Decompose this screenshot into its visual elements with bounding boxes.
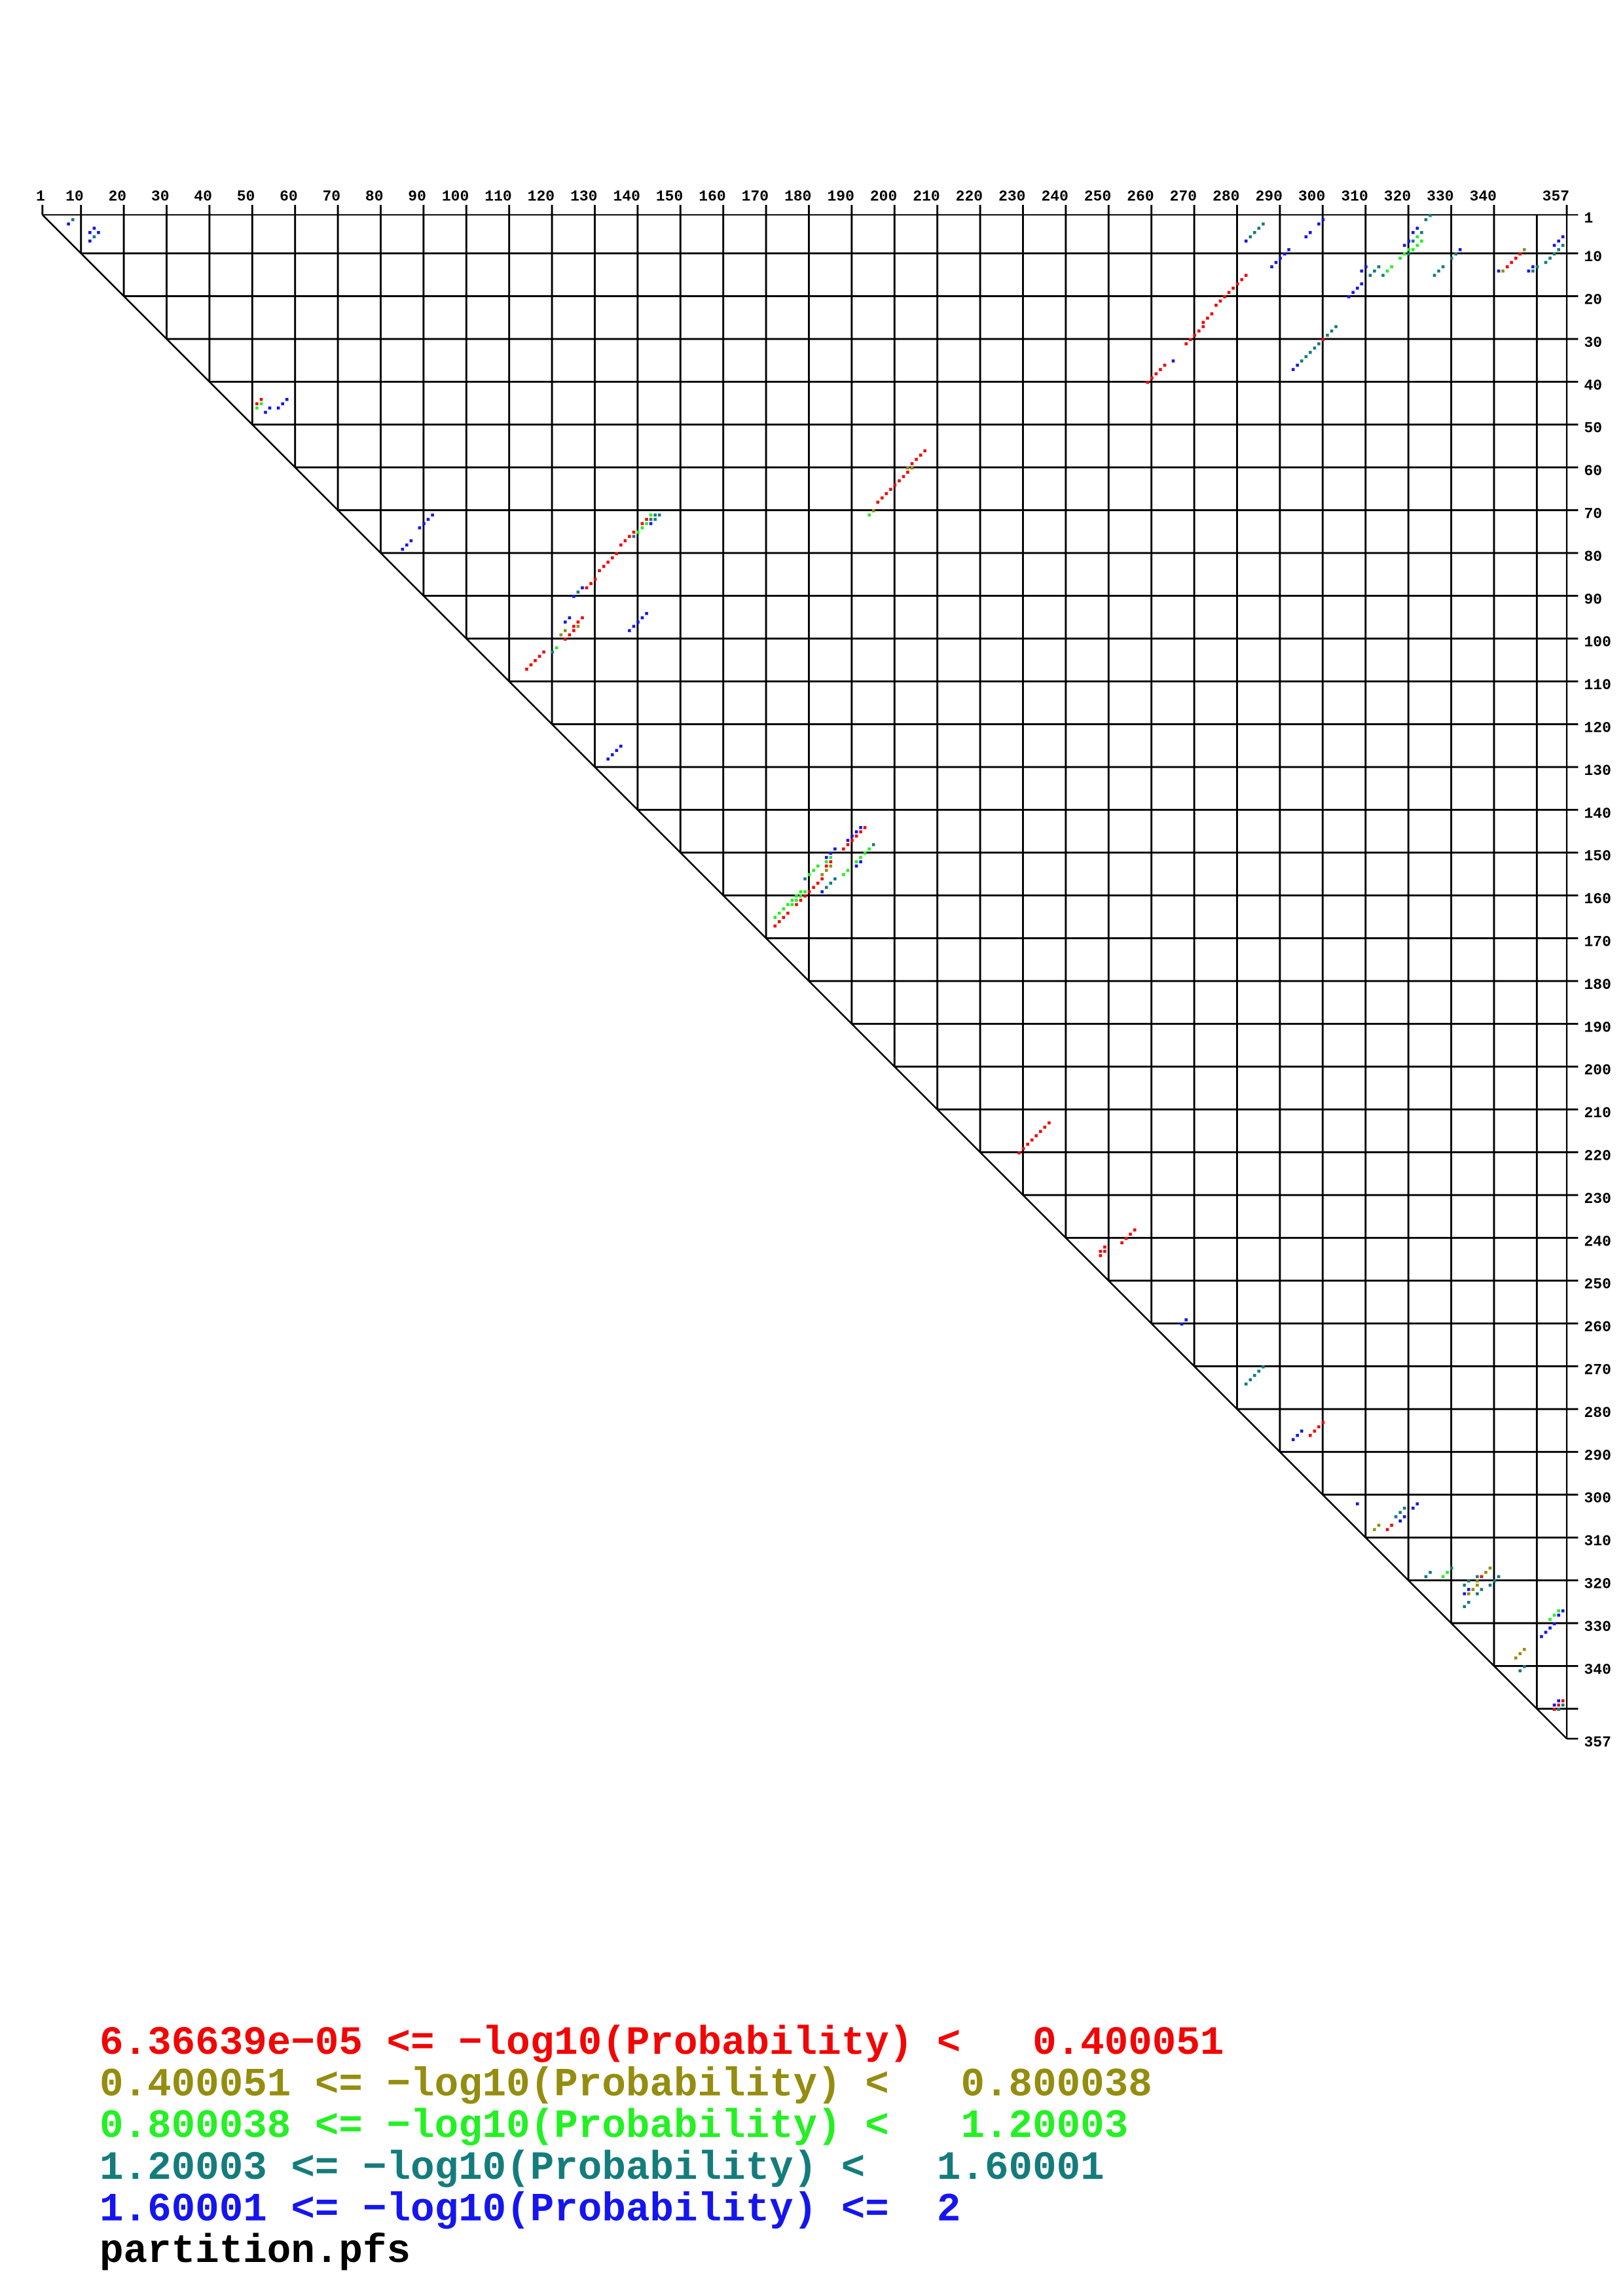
svg-text:1: 1 xyxy=(36,188,45,206)
svg-text:190: 190 xyxy=(1584,1019,1611,1036)
svg-text:90: 90 xyxy=(408,188,426,206)
svg-text:190: 190 xyxy=(827,188,854,206)
svg-text:90: 90 xyxy=(1584,591,1603,608)
svg-text:230: 230 xyxy=(1584,1191,1611,1208)
svg-text:300: 300 xyxy=(1298,188,1325,206)
svg-text:130: 130 xyxy=(1584,762,1611,780)
svg-text:200: 200 xyxy=(1584,1062,1611,1079)
svg-text:180: 180 xyxy=(784,188,811,206)
svg-text:1.20003 <= −log10(Probability): 1.20003 <= −log10(Probability) < 1.60001 xyxy=(100,2146,1104,2191)
svg-text:240: 240 xyxy=(1584,1233,1611,1250)
svg-text:110: 110 xyxy=(1584,677,1611,694)
svg-text:6.36639e−05 <= −log10(Probabil: 6.36639e−05 <= −log10(Probability) < 0.4… xyxy=(100,2021,1224,2066)
svg-text:140: 140 xyxy=(1584,805,1611,822)
svg-text:150: 150 xyxy=(656,188,683,206)
svg-text:160: 160 xyxy=(699,188,725,206)
svg-text:80: 80 xyxy=(365,188,384,206)
svg-text:10: 10 xyxy=(1584,249,1603,266)
svg-text:partition.pfs: partition.pfs xyxy=(100,2229,410,2274)
svg-text:10: 10 xyxy=(65,188,84,206)
svg-text:80: 80 xyxy=(1584,548,1603,565)
svg-text:20: 20 xyxy=(108,188,126,206)
svg-text:0.800038 <= −log10(Probability: 0.800038 <= −log10(Probability) < 1.2000… xyxy=(100,2104,1128,2149)
svg-text:100: 100 xyxy=(1584,634,1611,651)
svg-text:270: 270 xyxy=(1170,188,1197,206)
svg-text:250: 250 xyxy=(1584,1276,1611,1293)
svg-text:310: 310 xyxy=(1584,1533,1611,1550)
svg-text:120: 120 xyxy=(1584,720,1611,737)
svg-text:130: 130 xyxy=(570,188,597,206)
svg-text:340: 340 xyxy=(1584,1661,1611,1678)
svg-text:270: 270 xyxy=(1584,1362,1611,1379)
svg-text:120: 120 xyxy=(528,188,555,206)
svg-text:70: 70 xyxy=(1584,506,1603,523)
svg-text:330: 330 xyxy=(1584,1619,1611,1636)
svg-text:357: 357 xyxy=(1542,188,1569,206)
svg-text:240: 240 xyxy=(1041,188,1068,206)
svg-text:330: 330 xyxy=(1427,188,1453,206)
svg-text:260: 260 xyxy=(1127,188,1154,206)
svg-text:210: 210 xyxy=(1584,1105,1611,1122)
svg-text:0.400051 <= −log10(Probability: 0.400051 <= −log10(Probability) < 0.8000… xyxy=(100,2063,1152,2108)
svg-text:290: 290 xyxy=(1255,188,1282,206)
svg-text:70: 70 xyxy=(322,188,340,206)
svg-text:290: 290 xyxy=(1584,1447,1611,1464)
svg-text:140: 140 xyxy=(613,188,640,206)
svg-text:40: 40 xyxy=(194,188,212,206)
svg-text:100: 100 xyxy=(442,188,469,206)
svg-text:30: 30 xyxy=(151,188,170,206)
svg-text:250: 250 xyxy=(1084,188,1111,206)
svg-text:110: 110 xyxy=(484,188,511,206)
svg-text:300: 300 xyxy=(1584,1490,1611,1507)
svg-text:50: 50 xyxy=(237,188,255,206)
svg-text:60: 60 xyxy=(280,188,298,206)
svg-text:280: 280 xyxy=(1584,1405,1611,1422)
svg-text:170: 170 xyxy=(742,188,769,206)
svg-text:260: 260 xyxy=(1584,1319,1611,1336)
svg-text:20: 20 xyxy=(1584,292,1603,309)
svg-text:320: 320 xyxy=(1384,188,1411,206)
svg-text:180: 180 xyxy=(1584,977,1611,994)
svg-text:1: 1 xyxy=(1584,210,1594,227)
svg-text:320: 320 xyxy=(1584,1576,1611,1593)
svg-text:150: 150 xyxy=(1584,848,1611,865)
svg-text:40: 40 xyxy=(1584,377,1603,394)
svg-text:310: 310 xyxy=(1341,188,1368,206)
svg-text:210: 210 xyxy=(913,188,939,206)
svg-text:30: 30 xyxy=(1584,334,1603,351)
svg-text:50: 50 xyxy=(1584,420,1603,437)
svg-text:200: 200 xyxy=(870,188,897,206)
svg-text:280: 280 xyxy=(1213,188,1239,206)
svg-text:357: 357 xyxy=(1584,1734,1611,1751)
svg-text:230: 230 xyxy=(998,188,1025,206)
svg-text:340: 340 xyxy=(1470,188,1497,206)
svg-text:160: 160 xyxy=(1584,891,1611,908)
svg-text:220: 220 xyxy=(1584,1148,1611,1165)
svg-text:170: 170 xyxy=(1584,934,1611,951)
svg-text:60: 60 xyxy=(1584,463,1603,480)
svg-text:1.60001 <= −log10(Probability): 1.60001 <= −log10(Probability) <= 2 xyxy=(100,2187,960,2233)
svg-text:220: 220 xyxy=(956,188,983,206)
